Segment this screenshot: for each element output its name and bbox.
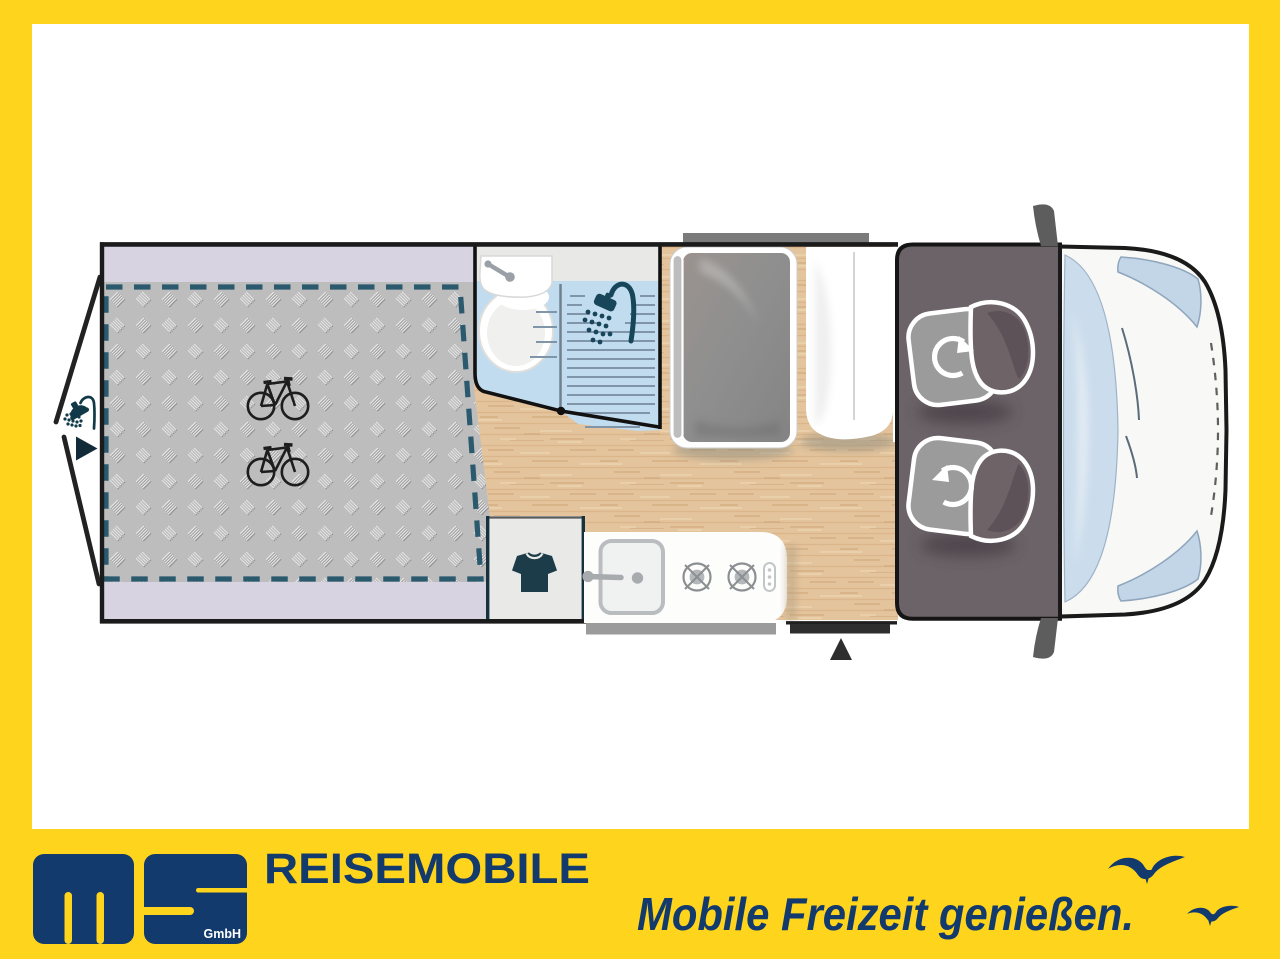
svg-text:Mobile Freizeit genießen.: Mobile Freizeit genießen. [637, 888, 1134, 940]
svg-text:REISEMOBILE: REISEMOBILE [264, 845, 590, 893]
svg-text:GmbH: GmbH [204, 927, 242, 941]
